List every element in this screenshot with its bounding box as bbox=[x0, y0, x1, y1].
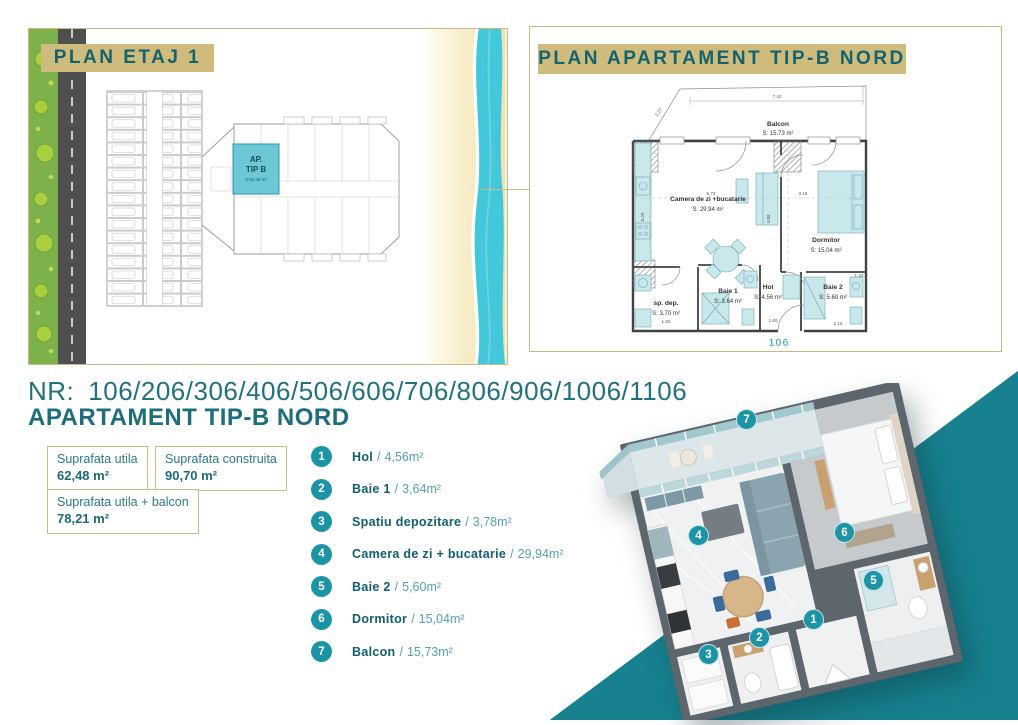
legend-room-area: 15,04m² bbox=[419, 612, 465, 626]
building-wing bbox=[202, 117, 399, 261]
legend-item-camera-de-zi: 4 Camera de zi + bucatarie/29,94m² bbox=[311, 544, 564, 565]
legend-separator: / bbox=[395, 482, 398, 496]
legend-room-area: 5,60m² bbox=[402, 580, 441, 594]
apartment-3d-render: 1 2 3 4 5 6 7 bbox=[588, 383, 993, 720]
legend-item-hol: 1 Hol/4,56m² bbox=[311, 446, 564, 467]
area-box-utila: Suprafata utila 62,48 m² bbox=[47, 446, 148, 491]
legend-room-name: Hol bbox=[352, 450, 373, 464]
legend-room-area: 15,73m² bbox=[407, 645, 453, 659]
legend-room-name: Spatiu depozitare bbox=[352, 515, 461, 529]
highlighted-unit: AP. TIP B S:62,48 m² bbox=[233, 144, 279, 194]
unit-label-2: TIP B bbox=[246, 165, 267, 174]
legend-room-name: Camera de zi + bucatarie bbox=[352, 547, 506, 561]
legend-number-badge: 2 bbox=[311, 479, 332, 500]
hol-label: Hol bbox=[763, 284, 774, 291]
grass-strip bbox=[29, 29, 58, 364]
spdep-area: S: 3.70 m² bbox=[652, 311, 680, 317]
right-panel-title: PLAN APARTAMENT TIP-B NORD bbox=[538, 44, 906, 74]
camera-label: Camera de zi +bucatarie bbox=[670, 196, 746, 203]
dim-dorm-h: 4.68 bbox=[766, 214, 771, 223]
dim-baie2-w: 2.10 bbox=[834, 321, 843, 326]
area-box-label: Suprafata utila bbox=[57, 452, 138, 468]
dim-balcon-diag: 2.27 bbox=[654, 107, 663, 118]
baie1-label: Baie 1 bbox=[718, 288, 738, 295]
legend-separator: / bbox=[510, 547, 513, 561]
beach bbox=[427, 29, 507, 364]
baie2-label: Baie 2 bbox=[823, 284, 843, 291]
baie2-area: S: 5.60 m² bbox=[819, 295, 847, 301]
balcony-outline bbox=[649, 86, 866, 140]
apartment-plan-panel: Balcon S: 15.73 m² Camera de zi +bucatar… bbox=[529, 26, 1002, 352]
room-legend: 1 Hol/4,56m² 2 Baie 1/3,64m² 3 Spatiu de… bbox=[311, 446, 564, 662]
legend-room-area: 3,78m² bbox=[473, 515, 512, 529]
legend-item-balcon: 7 Balcon/15,73m² bbox=[311, 641, 564, 662]
camera-area: S: 29.94 m² bbox=[692, 207, 723, 213]
unit-label-3: S:62,48 m² bbox=[245, 177, 268, 182]
parking-block bbox=[107, 91, 202, 306]
hol-area: S: 4.56 m² bbox=[754, 295, 782, 301]
legend-item-baie2: 5 Baie 2/5,60m² bbox=[311, 576, 564, 597]
legend-number-badge: 6 bbox=[311, 609, 332, 630]
3d-floorplan-drawing bbox=[588, 383, 993, 720]
dim-living-h: 5.20 bbox=[640, 212, 645, 221]
apartment-plan-drawing: Balcon S: 15.73 m² Camera de zi +bucatar… bbox=[530, 27, 1001, 351]
road bbox=[58, 29, 86, 364]
area-box-utila-balcon: Suprafata utila + balcon 78,21 m² bbox=[47, 489, 199, 534]
legend-separator: / bbox=[399, 645, 402, 659]
legend-number-badge: 7 bbox=[311, 641, 332, 662]
room-marker-dormitor: 6 bbox=[834, 522, 855, 543]
legend-number-badge: 3 bbox=[311, 511, 332, 532]
legend-item-dormitor: 6 Dormitor/15,04m² bbox=[311, 609, 564, 630]
dim-spdep-w: 1.83 bbox=[662, 319, 671, 324]
area-box-construita: Suprafata construita 90,70 m² bbox=[155, 446, 287, 491]
site-plan-drawing: AP. TIP B S:62,48 m² bbox=[29, 29, 507, 364]
room-marker-balcon: 7 bbox=[736, 409, 757, 430]
dim-baie2-r: 1.43 bbox=[855, 273, 864, 278]
balcon-area: S: 15.73 m² bbox=[762, 131, 793, 137]
legend-room-area: 4,56m² bbox=[385, 450, 424, 464]
balcon-label: Balcon bbox=[767, 121, 789, 128]
dormitor-label: Dormitor bbox=[812, 237, 840, 244]
room-marker-camera-de-zi: 4 bbox=[688, 525, 709, 546]
legend-room-name: Dormitor bbox=[352, 612, 407, 626]
area-box-value: 90,70 m² bbox=[165, 468, 277, 484]
legend-number-badge: 4 bbox=[311, 544, 332, 565]
legend-room-name: Balcon bbox=[352, 645, 395, 659]
legend-item-baie1: 2 Baie 1/3,64m² bbox=[311, 479, 564, 500]
dim-living-w: 5.73 bbox=[707, 191, 716, 196]
room-marker-spatiu-depozitare: 3 bbox=[698, 644, 719, 665]
legend-item-spatiu-depozitare: 3 Spatiu depozitare/3,78m² bbox=[311, 511, 564, 532]
panel-connector-line bbox=[480, 189, 529, 190]
legend-separator: / bbox=[411, 612, 414, 626]
dim-hol-w: 1.60 bbox=[769, 318, 778, 323]
dim-balcon-w: 7.42 bbox=[773, 94, 782, 99]
legend-separator: / bbox=[395, 580, 398, 594]
legend-room-name: Baie 2 bbox=[352, 580, 391, 594]
room-marker-hol: 1 bbox=[803, 609, 824, 630]
unit-number: 106 bbox=[768, 337, 789, 349]
baie1-area: S: 3.64 m² bbox=[714, 299, 742, 305]
room-marker-baie2: 5 bbox=[863, 570, 884, 591]
area-box-value: 62,48 m² bbox=[57, 468, 138, 484]
legend-number-badge: 5 bbox=[311, 576, 332, 597]
legend-room-area: 3,64m² bbox=[402, 482, 441, 496]
area-box-label: Suprafata utila + balcon bbox=[57, 495, 189, 511]
legend-number-badge: 1 bbox=[311, 446, 332, 467]
dormitor-area: S: 15.04 m² bbox=[810, 248, 841, 254]
legend-separator: / bbox=[465, 515, 468, 529]
area-box-label: Suprafata construita bbox=[165, 452, 277, 468]
legend-room-name: Baie 1 bbox=[352, 482, 391, 496]
apartment-type-title: APARTAMENT TIP-B NORD bbox=[28, 404, 350, 432]
left-panel-title: PLAN ETAJ 1 bbox=[41, 44, 214, 72]
unit-label-1: AP. bbox=[250, 155, 262, 164]
room-marker-baie1: 2 bbox=[749, 627, 770, 648]
legend-separator: / bbox=[377, 450, 380, 464]
area-box-value: 78,21 m² bbox=[57, 511, 189, 527]
dim-dorm-w: 3.16 bbox=[799, 191, 808, 196]
spdep-label: sp. dep. bbox=[654, 300, 679, 307]
legend-room-area: 29,94m² bbox=[518, 547, 564, 561]
nr-label: NR: bbox=[28, 376, 74, 406]
floor-plan-panel: AP. TIP B S:62,48 m² PLAN ETAJ 1 bbox=[28, 28, 508, 365]
